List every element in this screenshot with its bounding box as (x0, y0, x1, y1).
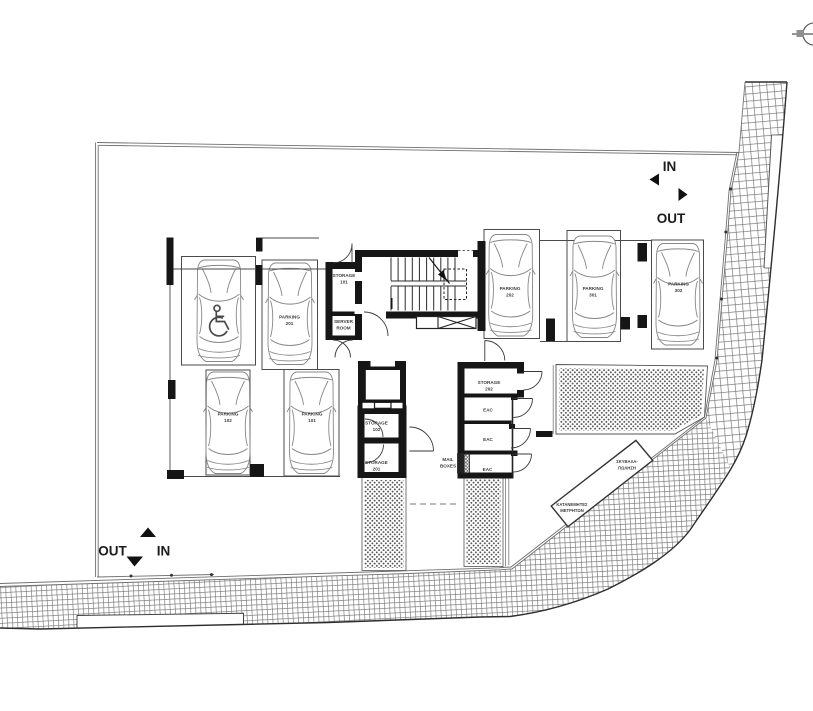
svg-text:OUT: OUT (657, 211, 686, 226)
svg-text:ΠΩΛΗΣΗ: ΠΩΛΗΣΗ (618, 466, 636, 471)
svg-text:PARKING: PARKING (218, 412, 239, 417)
svg-text:ΜΕΤΡΗΤΩΝ: ΜΕΤΡΗΤΩΝ (560, 508, 584, 513)
svg-text:PARKING: PARKING (279, 315, 300, 320)
svg-text:BOXES: BOXES (440, 464, 456, 469)
svg-text:201: 201 (373, 467, 381, 472)
svg-text:OUT: OUT (98, 544, 127, 559)
svg-text:SERVER: SERVER (334, 319, 353, 324)
svg-text:102: 102 (373, 427, 381, 432)
svg-text:202: 202 (485, 387, 493, 392)
svg-text:ROOM: ROOM (336, 326, 350, 331)
svg-text:102: 102 (224, 418, 232, 423)
svg-text:PARKING: PARKING (302, 412, 323, 417)
svg-text:EAC: EAC (483, 408, 493, 413)
svg-text:EAC: EAC (483, 467, 493, 472)
svg-text:PARKING: PARKING (583, 286, 604, 291)
svg-text:301: 301 (589, 293, 597, 298)
svg-text:IN: IN (157, 544, 171, 559)
svg-text:STORAGE: STORAGE (333, 273, 356, 278)
svg-text:STORAGE: STORAGE (365, 421, 388, 426)
svg-text:PARKING: PARKING (668, 282, 689, 287)
svg-text:STORAGE: STORAGE (478, 380, 501, 385)
svg-text:ΚΑΤΑΝΕΜΗΤΕΣ: ΚΑΤΑΝΕΜΗΤΕΣ (556, 502, 588, 507)
svg-text:STORAGE: STORAGE (365, 460, 388, 465)
svg-text:PARKING: PARKING (500, 286, 521, 291)
svg-text:302: 302 (675, 288, 683, 293)
svg-text:IN: IN (663, 159, 677, 174)
svg-text:202: 202 (506, 293, 514, 298)
svg-text:MAIL: MAIL (442, 457, 453, 462)
svg-text:101: 101 (308, 418, 316, 423)
svg-text:101: 101 (340, 280, 348, 285)
svg-text:201: 201 (286, 321, 294, 326)
svg-text:EAC: EAC (483, 437, 493, 442)
svg-text:ΣΚΥΒΑΛΑ-: ΣΚΥΒΑΛΑ- (616, 459, 638, 464)
